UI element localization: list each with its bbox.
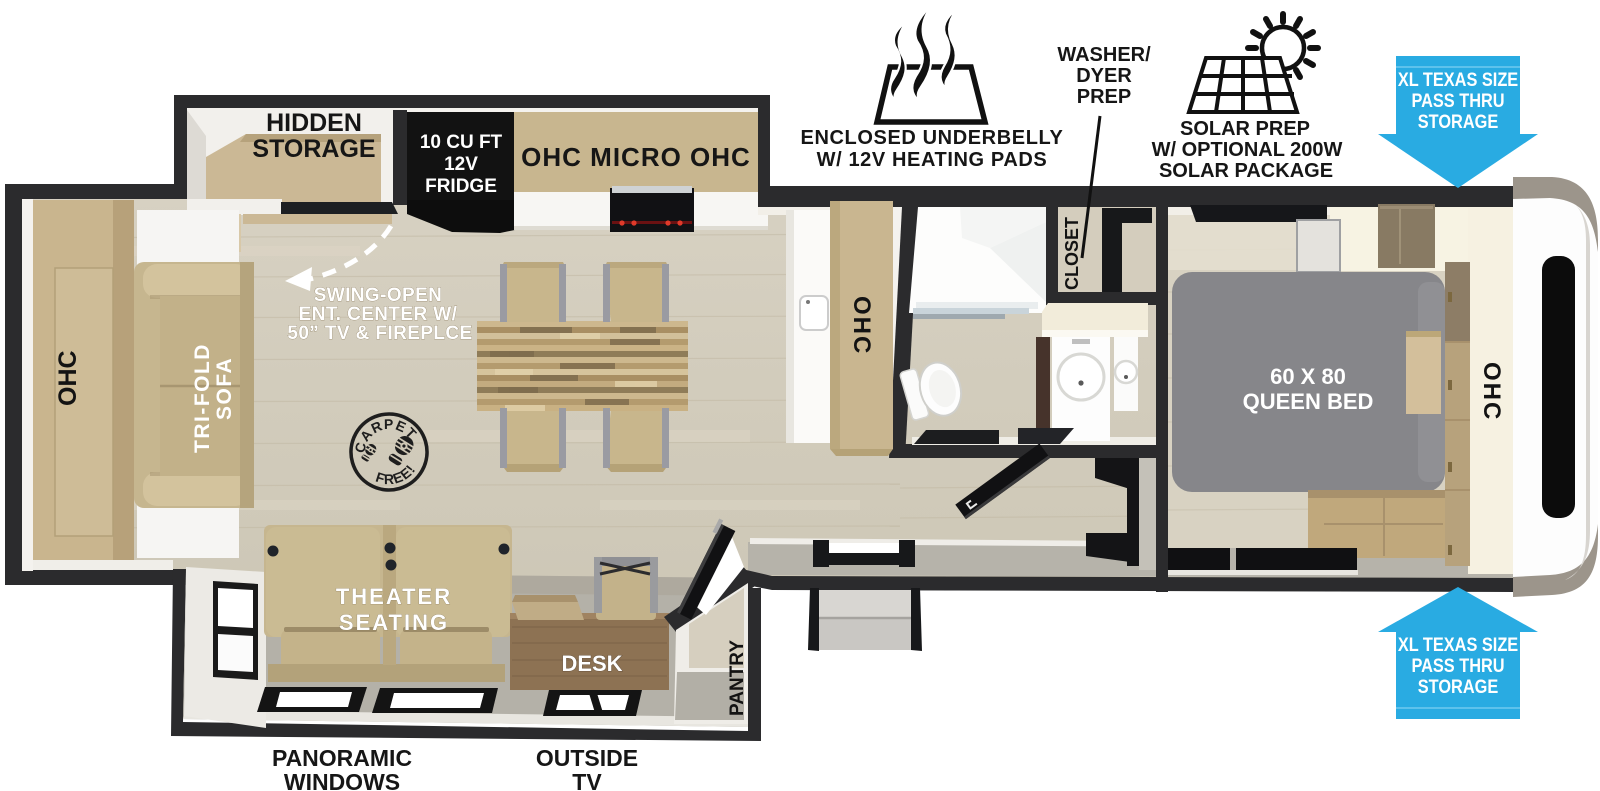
svg-text:PANTRY: PANTRY	[727, 640, 748, 716]
svg-text:10 CU FT: 10 CU FT	[420, 132, 503, 153]
svg-text:XL TEXAS SIZE: XL TEXAS SIZE	[1398, 634, 1519, 655]
svg-text:12V: 12V	[444, 154, 478, 175]
svg-text:STORAGE: STORAGE	[1418, 111, 1499, 132]
svg-text:PASS THRU: PASS THRU	[1411, 90, 1504, 111]
svg-text:XL TEXAS SIZE: XL TEXAS SIZE	[1398, 69, 1519, 90]
svg-text:DESK: DESK	[561, 651, 622, 676]
svg-text:CLOSET: CLOSET	[1062, 217, 1082, 290]
svg-text:SOLAR PREP: SOLAR PREP	[1180, 118, 1310, 140]
svg-text:OHC MICRO OHC: OHC MICRO OHC	[521, 142, 751, 172]
svg-text:HIDDEN: HIDDEN	[266, 109, 362, 137]
svg-text:SEATING: SEATING	[339, 610, 449, 635]
svg-text:SOFA: SOFA	[213, 357, 236, 420]
svg-text:FRIDGE: FRIDGE	[425, 176, 497, 197]
svg-text:TV: TV	[572, 769, 602, 791]
svg-text:TRI-FOLD: TRI-FOLD	[191, 343, 214, 453]
svg-text:PANORAMIC: PANORAMIC	[272, 745, 412, 771]
svg-text:PREP: PREP	[1077, 86, 1131, 108]
svg-text:WINDOWS: WINDOWS	[284, 769, 400, 791]
svg-text:WASHER/: WASHER/	[1057, 44, 1151, 66]
svg-text:ENT. CENTER W/: ENT. CENTER W/	[299, 304, 458, 325]
svg-text:THEATER: THEATER	[336, 584, 452, 609]
svg-text:OHC: OHC	[54, 350, 82, 406]
svg-text:60 X 80: 60 X 80	[1270, 364, 1346, 389]
svg-text:QUEEN BED: QUEEN BED	[1243, 389, 1374, 414]
svg-text:50” TV & FIREPLCE: 50” TV & FIREPLCE	[287, 323, 472, 344]
svg-text:PASS THRU: PASS THRU	[1411, 655, 1504, 676]
svg-text:W/ 12V HEATING PADS: W/ 12V HEATING PADS	[817, 149, 1048, 171]
svg-text:STORAGE: STORAGE	[252, 135, 375, 163]
svg-text:SWING-OPEN: SWING-OPEN	[314, 285, 443, 306]
svg-text:SOLAR PACKAGE: SOLAR PACKAGE	[1159, 160, 1333, 182]
svg-text:OUTSIDE: OUTSIDE	[536, 745, 638, 771]
svg-text:W/ OPTIONAL 200W: W/ OPTIONAL 200W	[1152, 139, 1343, 161]
svg-text:OHC: OHC	[1478, 362, 1505, 421]
svg-text:OHC: OHC	[848, 296, 875, 355]
svg-text:STORAGE: STORAGE	[1418, 676, 1499, 697]
svg-text:DYER: DYER	[1076, 65, 1132, 87]
svg-text:ENCLOSED UNDERBELLY: ENCLOSED UNDERBELLY	[801, 127, 1064, 149]
